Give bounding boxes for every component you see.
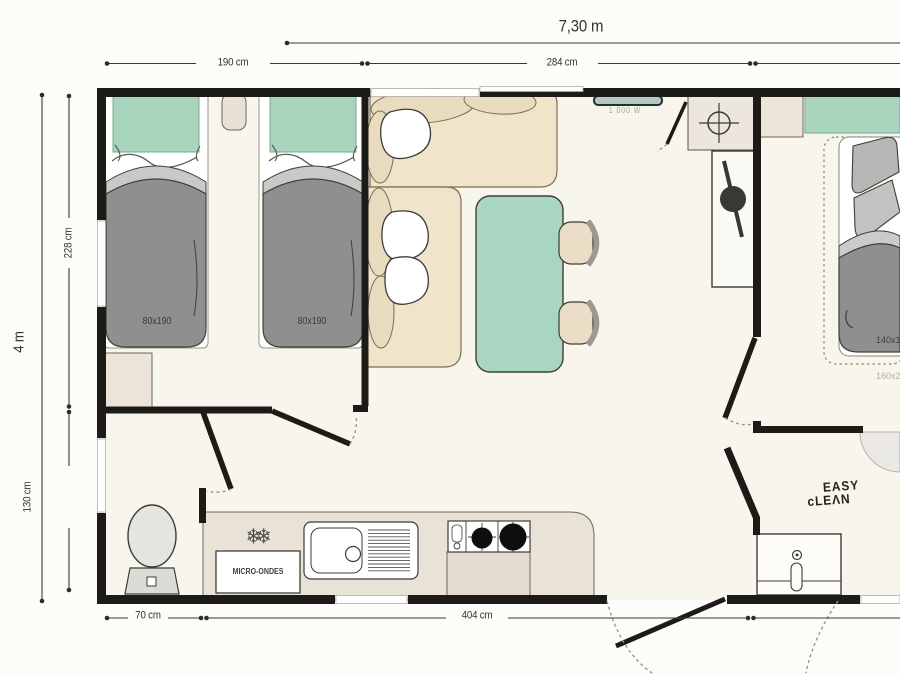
window-living xyxy=(371,89,479,97)
window-bathroom xyxy=(98,439,106,512)
window-bedroom1 xyxy=(98,221,106,306)
dim-overall-depth: 4 m xyxy=(12,331,27,352)
sofa-pillow xyxy=(382,211,428,260)
chair-2 xyxy=(559,301,597,345)
hob xyxy=(448,521,530,552)
bed2-size-label: 80x190 xyxy=(298,317,327,327)
double-bed-size-label: 140x19 xyxy=(876,336,900,345)
headboard xyxy=(805,92,900,133)
toilet xyxy=(125,505,179,594)
floorplan-drawing xyxy=(0,0,900,675)
door-shower-exterior xyxy=(861,596,900,604)
twin-bed-1 xyxy=(104,92,208,348)
sofa-pillow xyxy=(385,257,428,305)
window-strip xyxy=(480,87,583,92)
dim-bottom-404: 404 cm xyxy=(462,611,493,622)
fridge-snowflake-icon: ❄❄ xyxy=(246,527,266,548)
dim-overall-width: 7,30 m xyxy=(559,18,604,35)
dim-left-130: 130 cm xyxy=(23,482,34,513)
faucet xyxy=(346,547,361,562)
dim-bottom-70: 70 cm xyxy=(135,611,160,622)
microwave-label: MICRO-ONDES xyxy=(233,568,284,576)
burner-small xyxy=(472,528,493,549)
bedside-unit xyxy=(758,92,803,137)
chair-1 xyxy=(559,221,597,265)
floorplan-canvas: 7,30 m 190 cm 284 cm 4 m 228 cm 130 cm 7… xyxy=(0,0,900,675)
bed1-size-label: 80x190 xyxy=(143,317,172,327)
wardrobe-column xyxy=(712,151,757,287)
sink xyxy=(304,522,418,579)
dim-top-190: 190 cm xyxy=(218,58,249,69)
dim-top-284: 284 cm xyxy=(547,58,578,69)
shower-column xyxy=(791,563,802,591)
burner-large xyxy=(500,524,527,551)
twin-bed-2 xyxy=(259,92,363,348)
boiler-unit xyxy=(688,92,757,150)
mattress-outline-label: 160x2 xyxy=(876,372,900,381)
door-entrance xyxy=(616,599,725,646)
heater-power-label: 1 000 W xyxy=(609,107,641,115)
brand-clean: cLEΛN xyxy=(807,492,851,508)
window-kitchen xyxy=(336,596,407,604)
shower-unit xyxy=(757,534,841,595)
dresser xyxy=(101,353,152,408)
nightstand xyxy=(222,94,246,130)
dining-table xyxy=(476,196,563,372)
stove-cabinet xyxy=(447,552,530,596)
sofa-pillow xyxy=(381,109,431,158)
dim-left-228: 228 cm xyxy=(64,228,75,259)
